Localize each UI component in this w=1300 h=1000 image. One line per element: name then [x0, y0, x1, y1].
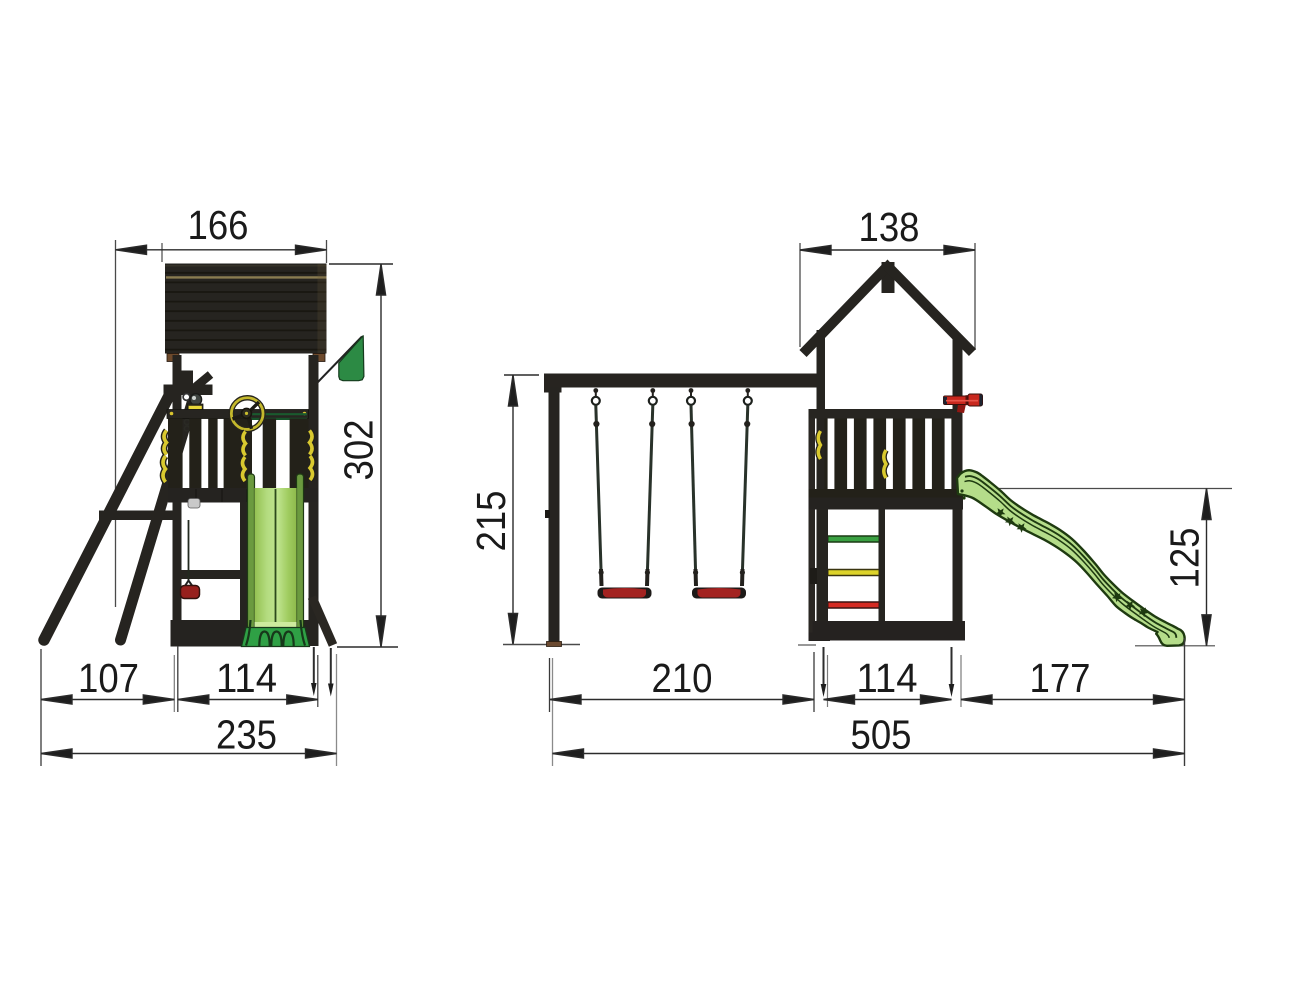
svg-text:125: 125 — [1162, 528, 1208, 589]
svg-text:166: 166 — [188, 202, 249, 248]
svg-text:302: 302 — [336, 420, 382, 481]
svg-text:210: 210 — [652, 655, 713, 701]
svg-text:107: 107 — [78, 655, 139, 701]
svg-text:114: 114 — [216, 655, 277, 701]
svg-text:177: 177 — [1030, 655, 1091, 701]
svg-text:114: 114 — [857, 655, 918, 701]
svg-text:138: 138 — [859, 204, 920, 250]
svg-text:235: 235 — [216, 712, 277, 758]
svg-text:505: 505 — [851, 712, 912, 758]
svg-text:215: 215 — [468, 491, 514, 552]
